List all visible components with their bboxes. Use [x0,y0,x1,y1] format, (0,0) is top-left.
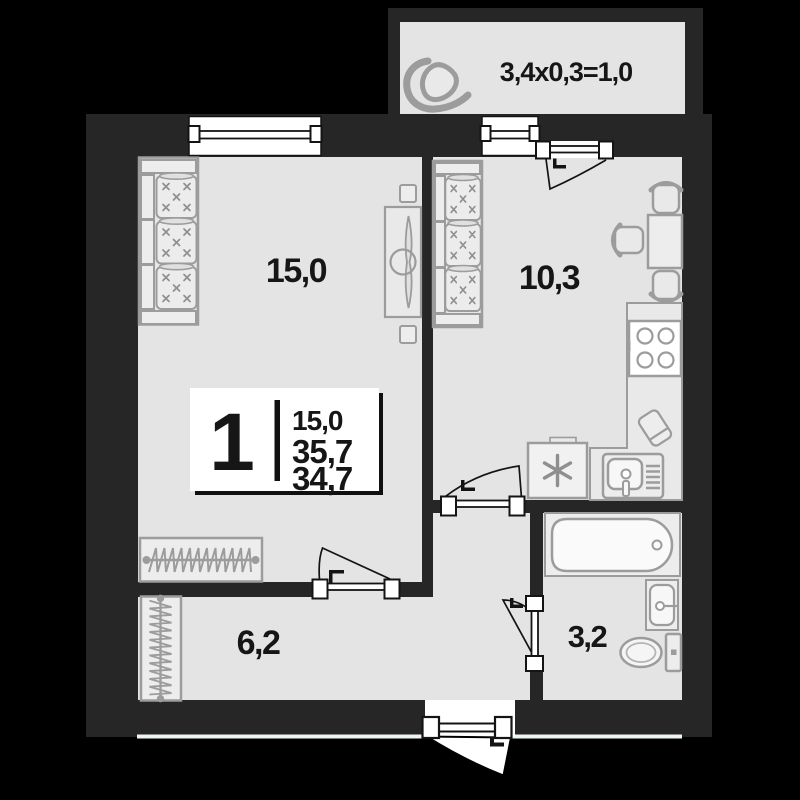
speaker-top [400,185,416,202]
door-leaf [532,611,539,657]
wardrobe-vertical [141,595,181,703]
door-jamb [385,580,400,599]
kitchen-sofa [433,161,482,327]
living-room-area-label: 15,0 [266,252,327,290]
chair-bottom [651,271,681,301]
legend-card: 1 15,0 35,7 34,7 [190,388,383,497]
door-leaf [456,501,510,508]
door-leaf [550,146,600,153]
legend-room-count: 1 [209,397,253,488]
door-jamb [441,497,456,516]
bottom-edge-highlight [137,735,682,739]
hallway-vestibule-floor [433,513,530,598]
door-jamb [423,717,440,738]
door-leaf [327,584,385,591]
hallway-floor [138,597,530,700]
chair-left [614,225,644,255]
kitchen-window [481,117,540,156]
door-jamb [536,142,550,159]
kitchen-sink [603,454,663,498]
dining-table [648,215,682,268]
bathroom-area-label: 3,2 [568,619,607,654]
stove [626,321,681,376]
door-jamb [510,497,525,516]
door-jamb [526,656,543,671]
kitchen-area-label: 10,3 [519,259,580,297]
toilet [621,634,682,671]
hallway-area-label: 6,2 [237,624,280,662]
door-leaf [439,724,496,732]
balcony-chair-seat [422,65,456,100]
door-jamb [313,580,328,599]
bathtub-drain [653,541,662,550]
door-jamb [599,142,613,159]
chair-top [651,184,681,214]
legend-living-area: 15,0 [292,405,343,436]
legend-reduced-area: 34,7 [292,460,352,497]
speaker-bottom [400,326,416,343]
door-jamb [526,596,543,611]
door-jamb [495,717,512,738]
wardrobe-horizontal [140,538,262,582]
bathtub [545,513,680,576]
balcony-area-label: 3,4х0,3=1,0 [500,57,632,87]
sofa [139,158,198,325]
fridge [528,438,587,499]
legend-divider [275,400,281,481]
living-room-window [189,117,322,156]
washbasin [646,580,678,630]
floor-plan: 3,4х0,3=1,0 [0,0,800,800]
